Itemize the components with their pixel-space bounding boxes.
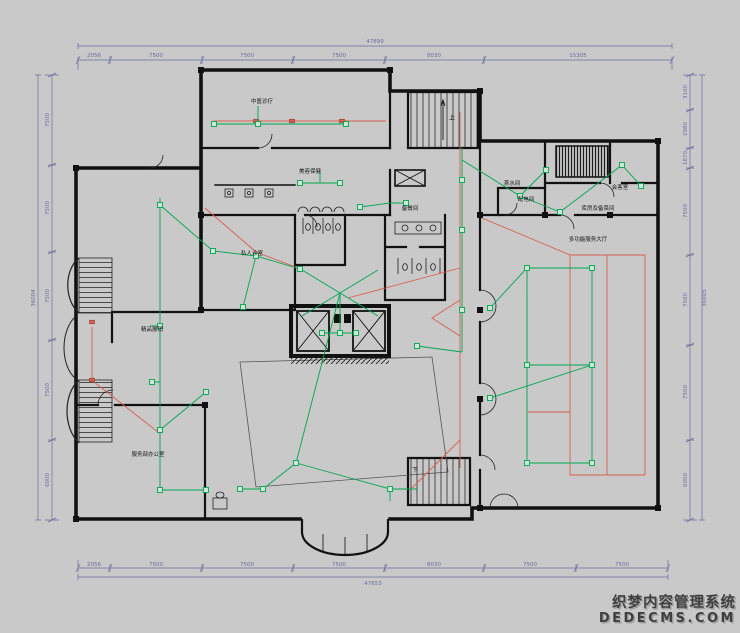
dimension-left: 36004 7500 7500 7500 7500 6000 bbox=[31, 73, 59, 522]
dim-left-total: 36004 bbox=[31, 289, 37, 307]
dim-bottom-seg: 8030 bbox=[427, 562, 441, 568]
room-label: 会客室 bbox=[612, 183, 629, 191]
room-label: 美容保健 bbox=[299, 167, 322, 175]
dimension-line bbox=[76, 560, 670, 580]
door-arcs bbox=[98, 134, 614, 508]
room-label: 配电间 bbox=[518, 195, 535, 203]
dim-bottom-seg: 7500 bbox=[240, 562, 254, 568]
stair-top-center: 上 bbox=[409, 93, 477, 147]
dim-right-seg: 1670 bbox=[683, 151, 689, 165]
dim-top-seg: 2056 bbox=[87, 53, 101, 59]
equipment-box bbox=[395, 170, 425, 186]
room-label: 备餐间 bbox=[402, 204, 419, 212]
stair-up-label: 上 bbox=[449, 114, 455, 122]
room-label: 茶水间 bbox=[504, 179, 521, 187]
dim-right-seg: 7500 bbox=[683, 385, 689, 399]
dim-right-seg: 6000 bbox=[683, 473, 689, 487]
stair-left-lower bbox=[67, 380, 112, 443]
stair-down-label: 下 bbox=[412, 467, 418, 474]
room-label: 精品展销 bbox=[141, 325, 164, 333]
room-label: 私人诊室 bbox=[241, 249, 264, 257]
bay-window bbox=[302, 519, 388, 555]
dim-left-seg: 7500 bbox=[45, 383, 51, 397]
floor-plan-drawing: 47899 2056 7500 7500 7500 8030 15305 476… bbox=[0, 0, 740, 633]
dimension-bottom: 47653 2056 7500 7500 7500 8030 7500 7500 bbox=[76, 560, 670, 587]
dim-left-seg: 7500 bbox=[45, 201, 51, 215]
dim-bottom-seg: 7500 bbox=[332, 562, 346, 568]
dim-right-seg: 7500 bbox=[683, 204, 689, 218]
dim-bottom-seg: 7500 bbox=[149, 562, 163, 568]
dim-top-seg: 7500 bbox=[240, 53, 254, 59]
dim-top-seg: 8030 bbox=[427, 53, 441, 59]
watermark: 织梦内容管理系统 DEDECMS.COM bbox=[599, 595, 736, 627]
fire-alarm-speakers bbox=[90, 119, 345, 382]
floor-plan-canvas: 47899 2056 7500 7500 7500 8030 15305 476… bbox=[0, 0, 740, 633]
watermark-domain: DEDECMS.COM bbox=[599, 612, 736, 627]
dim-bottom-seg: 7500 bbox=[615, 562, 629, 568]
elevator-machine bbox=[344, 314, 351, 323]
dim-top-seg: 15305 bbox=[569, 53, 587, 59]
stair-top-right bbox=[556, 146, 608, 177]
room-label: 服务部办公室 bbox=[131, 450, 165, 458]
dim-top-total: 47899 bbox=[366, 39, 384, 45]
dimension-right: 36005 3100 2980 1670 7500 7500 7500 6000 bbox=[683, 73, 708, 522]
dim-left-seg: 7500 bbox=[45, 289, 51, 303]
dim-right-seg: 7500 bbox=[683, 293, 689, 307]
dim-right-seg: 2980 bbox=[683, 122, 689, 136]
room-label: 库房及备菜间 bbox=[581, 204, 614, 212]
dim-right-total: 36005 bbox=[702, 289, 708, 307]
dimension-top: 47899 2056 7500 7500 7500 8030 15305 bbox=[76, 39, 674, 70]
dim-top-seg: 7500 bbox=[332, 53, 346, 59]
watermark-cms-name: 织梦内容管理系统 bbox=[599, 595, 736, 612]
dim-left-seg: 7500 bbox=[45, 113, 51, 127]
dim-right-seg: 3100 bbox=[683, 85, 689, 99]
dim-bottom-seg: 7500 bbox=[523, 562, 537, 568]
dim-bottom-total: 47653 bbox=[364, 581, 382, 587]
dim-top-seg: 7500 bbox=[149, 53, 163, 59]
room-label: 多功能服务大厅 bbox=[569, 235, 608, 243]
room-label: 中医诊疗 bbox=[251, 97, 274, 105]
dim-bottom-seg: 2056 bbox=[87, 562, 101, 568]
core-hatch-band bbox=[291, 356, 389, 364]
dim-left-seg: 6000 bbox=[45, 473, 51, 487]
